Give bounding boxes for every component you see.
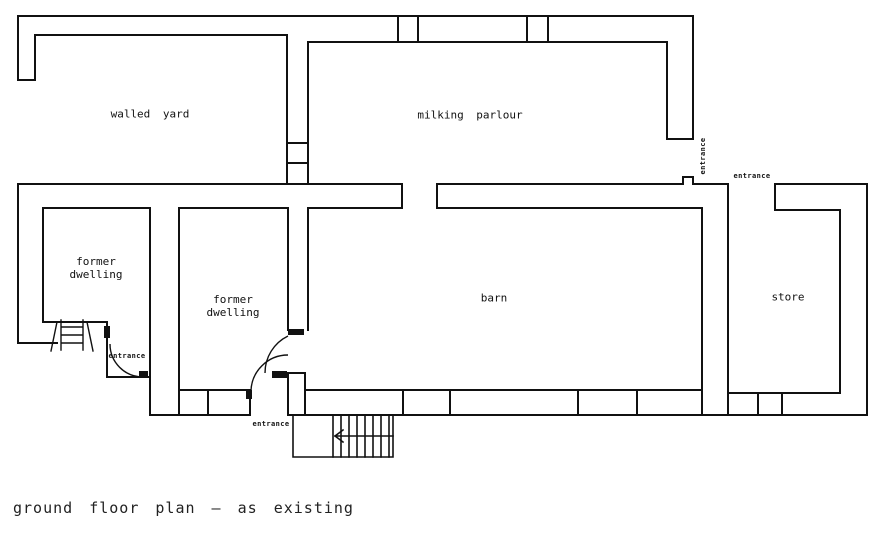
dwelling-entrance-label: entrance (109, 352, 146, 360)
store-entrance-label: entrance (734, 172, 771, 180)
parlour-side-entrance-label: entrance (699, 138, 707, 175)
walled-yard-label: walled yard (111, 108, 190, 121)
floor-plan-drawing (0, 0, 886, 537)
parlour-wall-piers (398, 16, 548, 42)
yard-parlour-divider-wall (287, 35, 308, 184)
external-stair (293, 415, 393, 457)
barn-walls (307, 208, 702, 415)
former-dwelling-1-label: formerdwelling (70, 255, 123, 281)
milking-parlour-label: milking parlour (417, 109, 522, 122)
door-swing-arcs (110, 336, 288, 392)
barn-label: barn (481, 292, 508, 305)
former-dwelling-2-line1: former (213, 293, 253, 306)
building-top-outer-wall (18, 177, 867, 415)
door-jamb-markers (104, 326, 304, 399)
former-dwelling-1-line1: former (76, 255, 116, 268)
steps-icon (51, 320, 93, 351)
plan-caption: ground floor plan — as existing (13, 499, 354, 517)
barn-south-entrance-label: entrance (253, 420, 290, 428)
dwelling-door-arc (110, 344, 143, 377)
store-label: store (771, 291, 804, 304)
building-top-inner-wall (308, 184, 702, 208)
former-dwelling-2-line2: dwelling (207, 306, 260, 319)
parlour-inner-wall (308, 42, 693, 139)
former-dwelling-1-line2: dwelling (70, 268, 123, 281)
yard-inner-wall (18, 35, 287, 80)
floor-plan-page: walled yard milking parlour formerdwelli… (0, 0, 886, 537)
former-dwelling-2-label: formerdwelling (207, 293, 260, 319)
stair-direction-arrow (335, 430, 393, 442)
dwelling1-walls (43, 208, 150, 415)
